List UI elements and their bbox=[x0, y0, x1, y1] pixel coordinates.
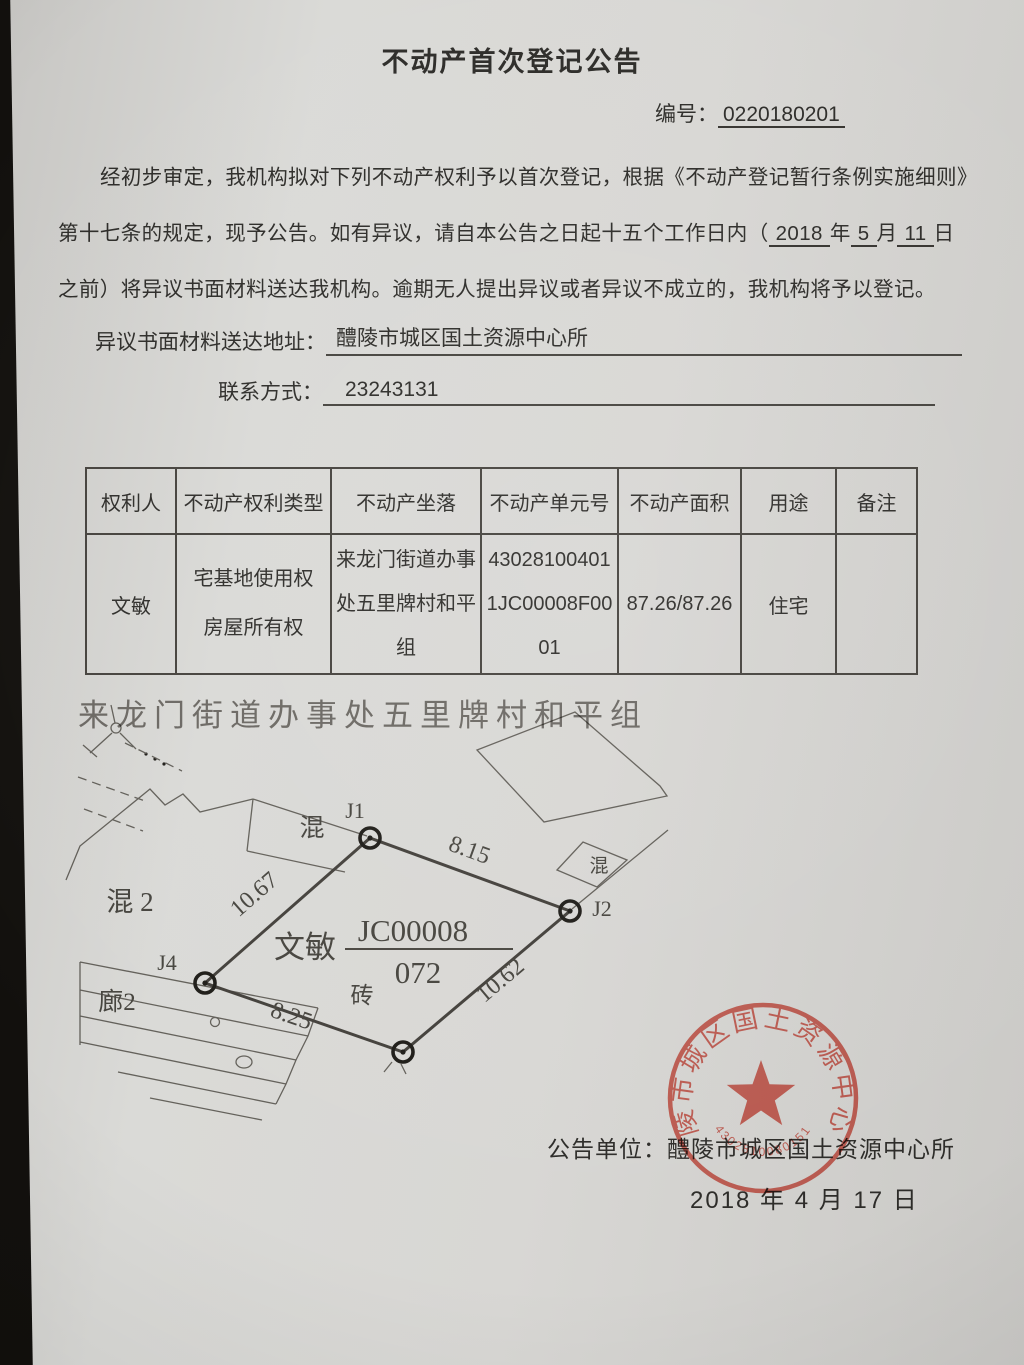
header-area: 不动产面积 bbox=[618, 468, 741, 534]
unit-number-line-3: 01 bbox=[482, 626, 617, 670]
location-line-2: 处五里牌村和平 bbox=[332, 582, 480, 626]
cell-location: 来龙门街道办事 处五里牌村和平 组 bbox=[331, 534, 481, 674]
header-unit-number: 不动产单元号 bbox=[481, 468, 618, 534]
announcement-date: 2018 年 4 月 17 日 bbox=[690, 1180, 919, 1215]
unit-number-line-1: 43028100401 bbox=[482, 538, 617, 582]
objection-address-label: 异议书面材料送达地址： bbox=[95, 326, 326, 356]
table-row: 文敏 宅基地使用权 房屋所有权 来龙门街道办事 处五里牌村和平 组 430281… bbox=[86, 534, 917, 674]
contact-line: 联系方式： 23243131 bbox=[218, 376, 935, 406]
right-type-line-2: 房屋所有权 bbox=[177, 604, 330, 653]
cell-rights-holder: 文敏 bbox=[86, 534, 176, 674]
location-line-3: 组 bbox=[332, 626, 480, 670]
contact-value: 23243131 bbox=[323, 378, 935, 406]
deadline-day-value: 11 bbox=[897, 222, 933, 247]
issuer-label: 公告单位： bbox=[547, 1136, 667, 1162]
issuer-value: 醴陵市城区国土资源中心所 bbox=[667, 1136, 955, 1162]
document-title: 不动产首次登记公告 bbox=[0, 40, 1024, 79]
header-rights-holder: 权利人 bbox=[86, 468, 176, 534]
serial-number-line: 编号：0220180201 bbox=[655, 98, 845, 128]
header-remark: 备注 bbox=[836, 468, 917, 534]
table-header-row: 权利人 不动产权利类型 不动产坐落 不动产单元号 不动产面积 用途 备注 bbox=[86, 468, 917, 534]
right-type-line-1: 宅基地使用权 bbox=[177, 555, 330, 604]
photographed-announcement-page: 不动产首次登记公告 编号：0220180201 经初步审定，我机构拟对下列不动产… bbox=[0, 0, 1024, 1365]
location-line-1: 来龙门街道办事 bbox=[332, 538, 480, 582]
serial-value: 0220180201 bbox=[718, 103, 845, 128]
issuer-line: 公告单位：醴陵市城区国土资源中心所 bbox=[547, 1130, 955, 1164]
contact-label: 联系方式： bbox=[218, 376, 323, 406]
objection-address-line: 异议书面材料送达地址： 醴陵市城区国土资源中心所 bbox=[95, 322, 962, 356]
registration-table: 权利人 不动产权利类型 不动产坐落 不动产单元号 不动产面积 用途 备注 文敏 … bbox=[85, 467, 918, 675]
cell-unit-number: 43028100401 1JC00008F00 01 bbox=[481, 534, 618, 674]
deadline-day-unit: 日 bbox=[934, 222, 955, 245]
serial-label: 编号： bbox=[655, 103, 718, 126]
unit-number-line-2: 1JC00008F00 bbox=[482, 582, 617, 626]
parcel-sketch-title: 来龙门街道办事处五里牌村和平组 bbox=[78, 690, 648, 735]
paragraph-line-1: 经初步审定，我机构拟对下列不动产权利予以首次登记，根据《不动产登记暂行条例实施细… bbox=[58, 160, 978, 190]
cell-area: 87.26/87.26 bbox=[618, 534, 741, 674]
paragraph-line-2: 第十七条的规定，现予公告。如有异议，请自本公告之日起十五个工作日内（2018年5… bbox=[58, 216, 954, 246]
paragraph-line-3: 之前）将异议书面材料送达我机构。逾期无人提出异议或者异议不成立的，我机构将予以登… bbox=[58, 272, 936, 302]
cell-remark bbox=[836, 534, 917, 674]
cell-right-type: 宅基地使用权 房屋所有权 bbox=[176, 534, 331, 674]
objection-address-value: 醴陵市城区国土资源中心所 bbox=[326, 322, 962, 356]
cell-usage: 住宅 bbox=[741, 534, 836, 674]
header-usage: 用途 bbox=[741, 468, 836, 534]
deadline-year-value: 2018 bbox=[769, 222, 830, 247]
header-right-type: 不动产权利类型 bbox=[176, 468, 331, 534]
header-location: 不动产坐落 bbox=[331, 468, 481, 534]
deadline-year-unit: 年 bbox=[830, 222, 851, 245]
paragraph-line-2-text: 第十七条的规定，现予公告。如有异议，请自本公告之日起十五个工作日内（ bbox=[58, 222, 769, 245]
deadline-month-unit: 月 bbox=[877, 222, 898, 245]
deadline-month-value: 5 bbox=[851, 222, 877, 247]
